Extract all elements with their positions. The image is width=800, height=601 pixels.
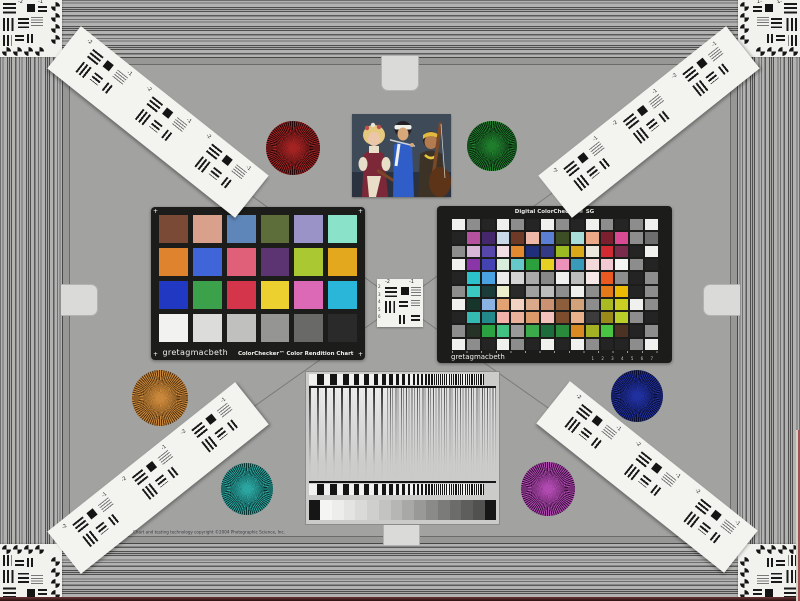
color-patch bbox=[452, 325, 465, 336]
sweep-bar bbox=[317, 374, 324, 385]
wedge-mark bbox=[24, 545, 33, 554]
color-patch bbox=[227, 215, 256, 243]
wedge-mark bbox=[13, 545, 22, 554]
color-patch bbox=[467, 312, 480, 323]
color-patch bbox=[482, 232, 495, 243]
gray-step bbox=[402, 500, 414, 520]
color-patch bbox=[601, 339, 614, 350]
color-patch bbox=[261, 215, 290, 243]
color-patch bbox=[159, 248, 188, 276]
color-patch bbox=[541, 272, 554, 283]
color-patch bbox=[526, 299, 539, 310]
wedge-mark bbox=[740, 2, 749, 11]
color-patch bbox=[586, 325, 599, 336]
color-patch bbox=[630, 312, 643, 323]
camera-test-chart: -2 -1 -2 -1 -2 -1 -2 -1 -2-1-2-1- bbox=[0, 0, 800, 601]
color-patch bbox=[526, 246, 539, 257]
color-patch bbox=[159, 281, 188, 309]
color-patch bbox=[467, 299, 480, 310]
color-patch bbox=[601, 232, 614, 243]
color-patch bbox=[497, 232, 510, 243]
wedge-mark bbox=[740, 13, 749, 22]
sweep-bar bbox=[483, 484, 484, 495]
wedge-mark bbox=[2, 545, 11, 554]
color-patch bbox=[482, 312, 495, 323]
color-patch bbox=[328, 281, 357, 309]
color-patch bbox=[645, 312, 658, 323]
gray-step bbox=[450, 500, 462, 520]
usaf-label: -1 bbox=[409, 280, 414, 285]
colorchecker-grid bbox=[159, 215, 357, 342]
color-patch bbox=[541, 219, 554, 230]
color-patch bbox=[541, 246, 554, 257]
color-patch bbox=[511, 286, 524, 297]
wedge-mark bbox=[789, 47, 798, 56]
color-patch bbox=[586, 299, 599, 310]
color-patch bbox=[556, 339, 569, 350]
colorchecker-sg-chart: Digital ColorChecker® SG gretagmacbeth 1… bbox=[437, 206, 672, 363]
color-patch bbox=[601, 259, 614, 270]
color-patch bbox=[586, 312, 599, 323]
color-patch bbox=[497, 259, 510, 270]
center-tab-left bbox=[61, 284, 98, 316]
wedge-mark bbox=[778, 545, 787, 554]
color-patch bbox=[541, 325, 554, 336]
gray-step bbox=[414, 500, 426, 520]
sweep-bars-top bbox=[309, 374, 496, 385]
color-patch bbox=[630, 232, 643, 243]
color-patch bbox=[452, 272, 465, 283]
color-patch bbox=[615, 232, 628, 243]
color-patch bbox=[193, 215, 222, 243]
wedge-mark bbox=[51, 24, 60, 33]
color-patch bbox=[294, 314, 323, 342]
sweep-bars-bottom bbox=[309, 484, 496, 495]
color-patch bbox=[556, 286, 569, 297]
sweep-bar bbox=[309, 484, 317, 495]
color-patch bbox=[630, 299, 643, 310]
color-patch bbox=[630, 259, 643, 270]
wedge-mark bbox=[740, 568, 749, 577]
color-patch bbox=[193, 281, 222, 309]
siemens-star-magenta bbox=[521, 462, 575, 516]
color-patch bbox=[541, 312, 554, 323]
color-patch bbox=[571, 272, 584, 283]
grayscale-wedge bbox=[309, 500, 496, 520]
color-patch bbox=[467, 286, 480, 297]
wedge-mark bbox=[51, 557, 60, 566]
color-patch bbox=[294, 281, 323, 309]
wedge-mark bbox=[767, 545, 776, 554]
color-patch bbox=[452, 312, 465, 323]
siemens-star-red bbox=[266, 121, 320, 175]
color-patch bbox=[452, 339, 465, 350]
color-patch bbox=[511, 272, 524, 283]
siemens-star-blue bbox=[611, 370, 663, 422]
color-patch bbox=[630, 286, 643, 297]
wedge-mark bbox=[740, 579, 749, 588]
color-patch bbox=[571, 312, 584, 323]
color-patch bbox=[467, 232, 480, 243]
color-patch bbox=[556, 325, 569, 336]
wedge-mark bbox=[51, 13, 60, 22]
color-patch bbox=[556, 312, 569, 323]
color-patch bbox=[452, 299, 465, 310]
color-patch bbox=[541, 286, 554, 297]
color-patch bbox=[526, 325, 539, 336]
color-patch bbox=[497, 272, 510, 283]
streak-fade-overlay bbox=[309, 388, 496, 481]
color-patch bbox=[467, 325, 480, 336]
sweep-bar bbox=[324, 374, 331, 385]
color-patch bbox=[645, 259, 658, 270]
color-patch bbox=[615, 299, 628, 310]
color-patch bbox=[497, 325, 510, 336]
color-patch bbox=[630, 219, 643, 230]
color-patch bbox=[328, 314, 357, 342]
color-patch bbox=[601, 299, 614, 310]
color-patch bbox=[556, 259, 569, 270]
sweep-bar bbox=[324, 484, 331, 495]
chart-bottom-edge-line bbox=[0, 597, 800, 601]
edge-grating-right bbox=[738, 57, 800, 544]
sg-grid bbox=[452, 219, 658, 350]
color-patch bbox=[571, 246, 584, 257]
sg-brand: gretagmacbeth bbox=[451, 353, 505, 361]
color-patch bbox=[482, 259, 495, 270]
color-patch bbox=[556, 246, 569, 257]
color-patch bbox=[601, 325, 614, 336]
color-patch bbox=[497, 219, 510, 230]
color-patch bbox=[571, 339, 584, 350]
color-patch bbox=[294, 215, 323, 243]
color-patch bbox=[482, 325, 495, 336]
color-patch bbox=[294, 248, 323, 276]
color-patch bbox=[452, 246, 465, 257]
wedge-mark bbox=[778, 47, 787, 56]
color-patch bbox=[586, 339, 599, 350]
sweep-bar bbox=[309, 374, 317, 385]
wedge-mark bbox=[740, 24, 749, 33]
color-patch bbox=[193, 314, 222, 342]
color-patch bbox=[261, 281, 290, 309]
color-patch bbox=[526, 312, 539, 323]
wedge-mark bbox=[51, 35, 60, 44]
wedge-mark bbox=[51, 2, 60, 11]
edge-grating-top bbox=[57, 0, 743, 57]
color-patch bbox=[571, 232, 584, 243]
color-patch bbox=[571, 299, 584, 310]
siemens-star-orange bbox=[132, 370, 188, 426]
color-patch bbox=[193, 248, 222, 276]
color-patch bbox=[497, 246, 510, 257]
center-tab-right bbox=[703, 284, 740, 316]
corner-target-top-left: -2 -1 bbox=[0, 0, 62, 57]
color-patch bbox=[645, 219, 658, 230]
portrait-photo-illustration bbox=[352, 114, 451, 197]
color-patch bbox=[526, 286, 539, 297]
color-patch bbox=[227, 281, 256, 309]
color-patch bbox=[511, 246, 524, 257]
edge-grating-left bbox=[0, 57, 62, 544]
gray-step bbox=[344, 500, 356, 520]
center-resolution-target: 23456 -2 -1 bbox=[377, 279, 423, 327]
wedge-mark bbox=[51, 568, 60, 577]
color-patch bbox=[467, 272, 480, 283]
color-patch bbox=[482, 339, 495, 350]
wedge-mark bbox=[35, 545, 44, 554]
color-patch bbox=[467, 219, 480, 230]
sweep-bar bbox=[317, 484, 324, 495]
gray-step bbox=[355, 500, 367, 520]
color-patch bbox=[615, 325, 628, 336]
color-patch bbox=[615, 312, 628, 323]
gray-step bbox=[367, 500, 379, 520]
color-patch bbox=[615, 259, 628, 270]
color-patch bbox=[511, 299, 524, 310]
color-patch bbox=[526, 272, 539, 283]
color-patch bbox=[467, 246, 480, 257]
color-patch bbox=[556, 219, 569, 230]
gray-step bbox=[379, 500, 391, 520]
color-patch bbox=[586, 219, 599, 230]
corner-target-bottom-right: -2 -1 bbox=[738, 544, 800, 601]
color-patch bbox=[615, 246, 628, 257]
color-patch bbox=[526, 339, 539, 350]
color-patch bbox=[586, 246, 599, 257]
corner-target-bottom-left: -2 -1 bbox=[0, 544, 62, 601]
registration-mark: + bbox=[358, 209, 363, 215]
wedge-mark bbox=[740, 557, 749, 566]
wedge-mark bbox=[740, 35, 749, 44]
color-patch bbox=[645, 299, 658, 310]
color-patch bbox=[601, 246, 614, 257]
color-patch bbox=[615, 339, 628, 350]
center-tab-top bbox=[381, 56, 419, 91]
wedge-end-cap bbox=[309, 500, 320, 520]
color-patch bbox=[645, 232, 658, 243]
color-patch bbox=[511, 325, 524, 336]
color-patch bbox=[526, 219, 539, 230]
color-patch bbox=[497, 286, 510, 297]
color-patch bbox=[328, 215, 357, 243]
color-patch bbox=[526, 232, 539, 243]
color-patch bbox=[601, 219, 614, 230]
color-patch bbox=[497, 339, 510, 350]
copyright-text: Chart and testing technology copyright ©… bbox=[133, 530, 285, 535]
color-patch bbox=[261, 248, 290, 276]
gray-step bbox=[320, 500, 332, 520]
wedge-mark bbox=[13, 47, 22, 56]
sg-title: Digital ColorChecker® SG bbox=[437, 209, 672, 215]
color-patch bbox=[452, 259, 465, 270]
colorchecker-label: gretagmacbeth ColorChecker™ Color Rendit… bbox=[151, 348, 365, 357]
colorchecker-title: ColorChecker™ Color Rendition Chart bbox=[238, 351, 353, 357]
color-patch bbox=[630, 339, 643, 350]
color-patch bbox=[615, 286, 628, 297]
color-patch bbox=[571, 286, 584, 297]
color-patch bbox=[511, 259, 524, 270]
color-patch bbox=[541, 299, 554, 310]
color-patch bbox=[482, 286, 495, 297]
gray-step bbox=[426, 500, 438, 520]
edge-grating-bottom bbox=[57, 544, 743, 601]
gray-step bbox=[332, 500, 344, 520]
wedge-mark bbox=[24, 47, 33, 56]
color-patch bbox=[497, 312, 510, 323]
color-patch bbox=[601, 286, 614, 297]
siemens-star-green bbox=[467, 121, 517, 171]
color-patch bbox=[556, 299, 569, 310]
color-patch bbox=[467, 259, 480, 270]
gray-step bbox=[473, 500, 485, 520]
resolution-scale-numbers: 23456 bbox=[378, 285, 381, 319]
frequency-sweep-panel bbox=[305, 371, 500, 525]
colorchecker-classic-chart: + + + + gretagmacbeth ColorChecker™ Colo… bbox=[151, 207, 365, 360]
color-patch bbox=[482, 219, 495, 230]
color-patch bbox=[497, 299, 510, 310]
color-patch bbox=[586, 259, 599, 270]
gray-step bbox=[391, 500, 403, 520]
color-patch bbox=[452, 286, 465, 297]
siemens-star-teal bbox=[221, 463, 273, 515]
color-patch bbox=[511, 312, 524, 323]
gray-step bbox=[461, 500, 473, 520]
color-patch bbox=[586, 232, 599, 243]
color-patch bbox=[645, 246, 658, 257]
color-patch bbox=[526, 259, 539, 270]
color-patch bbox=[615, 219, 628, 230]
color-patch bbox=[482, 246, 495, 257]
color-patch bbox=[630, 272, 643, 283]
sg-ruler-numbers: 1 2 3 4 5 6 7 bbox=[592, 356, 656, 361]
color-patch bbox=[511, 339, 524, 350]
color-patch bbox=[645, 272, 658, 283]
color-patch bbox=[452, 232, 465, 243]
color-patch bbox=[601, 272, 614, 283]
color-patch bbox=[556, 232, 569, 243]
color-patch bbox=[159, 314, 188, 342]
wedge-mark bbox=[767, 47, 776, 56]
color-patch bbox=[227, 248, 256, 276]
color-patch bbox=[452, 219, 465, 230]
color-patch bbox=[630, 325, 643, 336]
color-patch bbox=[328, 248, 357, 276]
color-patch bbox=[511, 219, 524, 230]
colorchecker-brand: gretagmacbeth bbox=[163, 348, 228, 357]
chart-right-edge-line bbox=[796, 430, 800, 601]
wedge-mark bbox=[35, 47, 44, 56]
color-patch bbox=[571, 219, 584, 230]
color-patch bbox=[227, 314, 256, 342]
usaf-label: -2 bbox=[385, 280, 390, 285]
wedge-mark bbox=[756, 47, 765, 56]
color-patch bbox=[541, 259, 554, 270]
wedge-end-cap bbox=[485, 500, 496, 520]
color-patch bbox=[645, 325, 658, 336]
color-patch bbox=[482, 299, 495, 310]
color-patch bbox=[467, 339, 480, 350]
corner-target-top-right: -2 -1 bbox=[738, 0, 800, 57]
color-patch bbox=[556, 272, 569, 283]
wedge-mark bbox=[2, 47, 11, 56]
color-patch bbox=[541, 339, 554, 350]
sweep-bar bbox=[483, 374, 484, 385]
color-patch bbox=[615, 272, 628, 283]
panel-line-bottom bbox=[309, 481, 496, 483]
color-patch bbox=[586, 286, 599, 297]
color-patch bbox=[159, 215, 188, 243]
color-patch bbox=[645, 339, 658, 350]
color-patch bbox=[645, 286, 658, 297]
color-patch bbox=[482, 272, 495, 283]
color-patch bbox=[630, 246, 643, 257]
portrait-test-photo bbox=[352, 114, 451, 197]
color-patch bbox=[261, 314, 290, 342]
registration-mark: + bbox=[153, 209, 158, 215]
color-patch bbox=[586, 272, 599, 283]
color-patch bbox=[571, 259, 584, 270]
color-patch bbox=[511, 232, 524, 243]
color-patch bbox=[541, 232, 554, 243]
color-patch bbox=[601, 312, 614, 323]
wedge-mark bbox=[51, 579, 60, 588]
gray-step bbox=[438, 500, 450, 520]
color-patch bbox=[571, 325, 584, 336]
wedge-mark bbox=[756, 545, 765, 554]
